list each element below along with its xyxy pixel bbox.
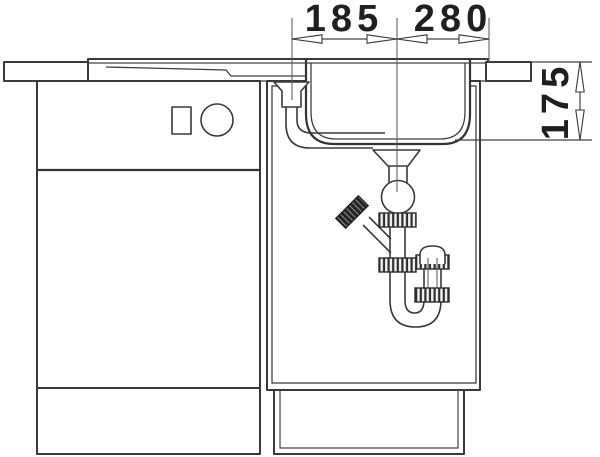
trap-outlet-dome [420, 246, 445, 264]
coupling-nut-outlet-bottom [415, 288, 449, 302]
sink-bowl-outer [306, 60, 470, 144]
coupling-nut-middle [379, 258, 416, 272]
coupling-nut-upper [379, 213, 416, 227]
sink-installation-drawing: 185 280 175 [0, 0, 600, 457]
dimension-label-185: 185 [305, 0, 383, 40]
dishwasher-cabinet [37, 81, 260, 454]
dishwasher-outline [37, 81, 260, 454]
dimension-label-175: 175 [535, 62, 577, 140]
dimension-label-280: 280 [414, 0, 492, 40]
plinth-outer [274, 390, 464, 454]
ball-joint [382, 181, 415, 214]
diagram-canvas: 185 280 175 [0, 0, 600, 457]
